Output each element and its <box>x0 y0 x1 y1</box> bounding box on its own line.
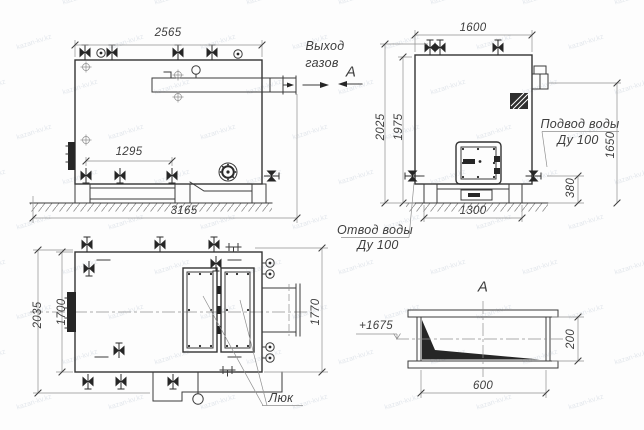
plan-view <box>30 237 328 406</box>
gas-outlet-label-line1: Выход <box>305 39 344 53</box>
section-a-view <box>356 301 584 398</box>
water-inlet-label-line1: Подвод воды <box>540 117 619 131</box>
dim-shell-height: 1975 <box>393 114 405 141</box>
dim-total-height: 2025 <box>375 114 387 141</box>
gas-outlet-label-line2: газов <box>305 56 338 70</box>
dim-plan-shell-width: 1700 <box>56 299 68 326</box>
dim-front-top-width: 2565 <box>155 27 182 39</box>
dim-side-top-width: 1600 <box>460 22 487 34</box>
dim-plan-total-width: 2035 <box>32 302 44 329</box>
section-mark-label: А <box>346 64 356 81</box>
drawing-sheet: kazan-kv.kzkazan-kv.kzkazan-kv.kzkazan-k… <box>0 0 644 430</box>
hatch-label: Люк <box>269 391 294 405</box>
elevation-mark: +1675 <box>359 320 393 332</box>
dim-total-length: 3165 <box>171 205 198 217</box>
dim-drain-spacing: 1295 <box>116 146 143 158</box>
dim-base-width: 1300 <box>460 205 487 217</box>
dim-section-width: 600 <box>473 380 493 392</box>
dim-section-height: 200 <box>565 329 577 349</box>
dim-water-inlet-height: 380 <box>565 178 577 198</box>
water-outlet-label-line2: Ду 100 <box>357 238 398 252</box>
section-title: А <box>478 279 488 296</box>
dim-gas-outlet-height: 1650 <box>605 132 617 159</box>
water-inlet-label-line2: Ду 100 <box>557 133 598 147</box>
dim-plan-right-width: 1770 <box>310 299 322 326</box>
water-outlet-label-line1: Отвод воды <box>337 223 413 237</box>
